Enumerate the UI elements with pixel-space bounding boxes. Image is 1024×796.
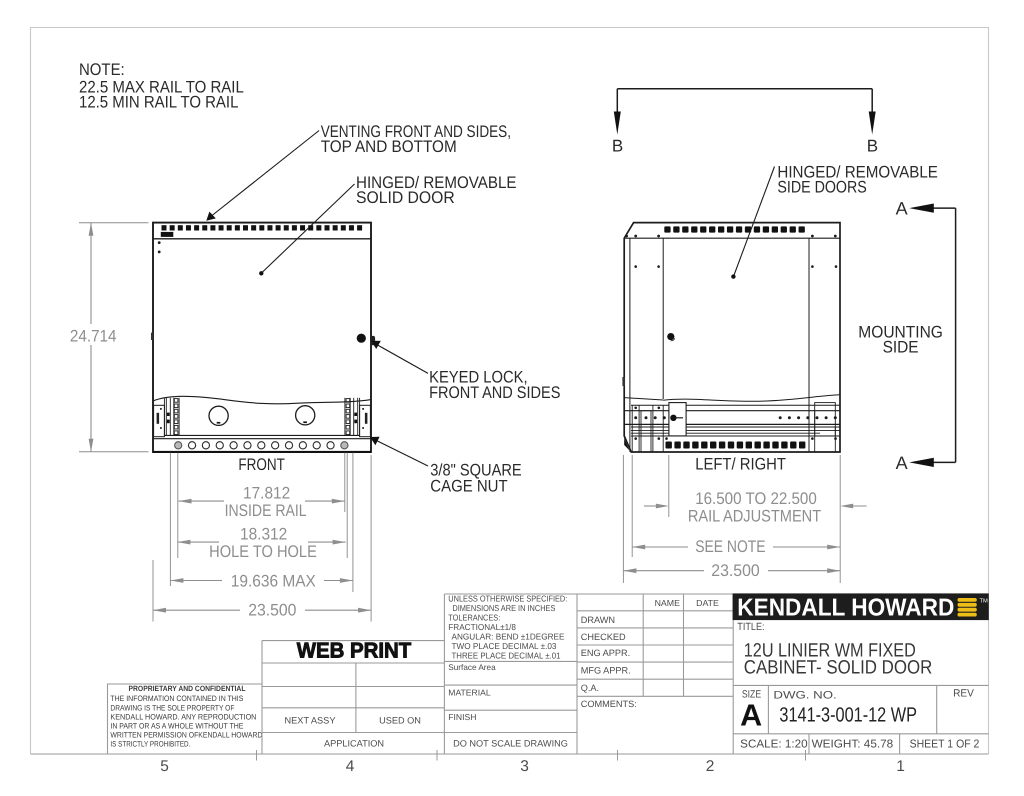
svg-text:A: A bbox=[896, 198, 908, 218]
svg-text:24.714: 24.714 bbox=[70, 326, 117, 345]
svg-text:FRONT: FRONT bbox=[238, 455, 285, 474]
svg-text:TITLE:: TITLE: bbox=[737, 621, 764, 633]
svg-text:TM: TM bbox=[980, 599, 989, 605]
svg-text:5: 5 bbox=[160, 758, 169, 775]
svg-text:LEFT/ RIGHT: LEFT/ RIGHT bbox=[695, 455, 786, 474]
svg-text:DIMENSIONS ARE IN INCHES: DIMENSIONS ARE IN INCHES bbox=[452, 603, 555, 613]
svg-text:FINISH: FINISH bbox=[448, 712, 476, 722]
svg-text:12.5 MIN RAIL TO RAIL: 12.5 MIN RAIL TO RAIL bbox=[79, 93, 238, 112]
svg-text:PROPRIETARY AND CONFIDENTIAL: PROPRIETARY AND CONFIDENTIAL bbox=[129, 684, 246, 693]
svg-text:SOLID DOOR: SOLID DOOR bbox=[356, 188, 455, 207]
svg-text:TWO PLACE DECIMAL ±.03: TWO PLACE DECIMAL ±.03 bbox=[452, 641, 557, 651]
svg-text:USED ON: USED ON bbox=[379, 716, 421, 726]
svg-text:SHEET 1 OF 2: SHEET 1 OF 2 bbox=[910, 739, 980, 751]
svg-text:DRAWN: DRAWN bbox=[581, 615, 615, 625]
svg-text:IN PART OR AS A WHOLE WITHOUT: IN PART OR AS A WHOLE WITHOUT THE bbox=[110, 722, 243, 731]
svg-text:TOLERANCES:: TOLERANCES: bbox=[448, 613, 500, 623]
svg-text:A: A bbox=[740, 699, 762, 733]
svg-text:Q.A.: Q.A. bbox=[581, 683, 599, 693]
svg-text:B: B bbox=[612, 136, 623, 155]
svg-text:COMMENTS:: COMMENTS: bbox=[581, 699, 637, 709]
svg-text:FRONT AND SIDES: FRONT AND SIDES bbox=[429, 383, 560, 402]
svg-text:17.812: 17.812 bbox=[243, 484, 290, 503]
svg-text:HOLE TO HOLE: HOLE TO HOLE bbox=[209, 542, 317, 561]
svg-text:CHECKED: CHECKED bbox=[581, 632, 626, 642]
svg-text:KENDALL HOWARD. ANY REPRODUCT: KENDALL HOWARD. ANY REPRODUCTION bbox=[110, 712, 256, 721]
svg-text:TOP AND BOTTOM: TOP AND BOTTOM bbox=[321, 137, 457, 156]
svg-text:B: B bbox=[867, 136, 878, 155]
svg-text:WEIGHT: 45.78: WEIGHT: 45.78 bbox=[812, 739, 894, 751]
svg-text:CABINET- SOLID DOOR: CABINET- SOLID DOOR bbox=[744, 658, 933, 679]
svg-text:Surface Area: Surface Area bbox=[448, 663, 496, 672]
svg-text:A: A bbox=[896, 453, 908, 473]
svg-text:3: 3 bbox=[520, 758, 529, 775]
svg-text:NOTE:: NOTE: bbox=[79, 60, 125, 79]
svg-text:DO NOT SCALE DRAWING: DO NOT SCALE DRAWING bbox=[453, 738, 568, 748]
svg-text:DWG. NO.: DWG. NO. bbox=[773, 689, 836, 701]
svg-text:CAGE NUT: CAGE NUT bbox=[430, 477, 507, 496]
svg-text:4: 4 bbox=[346, 758, 355, 775]
svg-text:19.636 MAX: 19.636 MAX bbox=[231, 572, 316, 591]
svg-text:MATERIAL: MATERIAL bbox=[448, 687, 491, 697]
svg-text:UNLESS OTHERWISE SPECIFIED:: UNLESS OTHERWISE SPECIFIED: bbox=[448, 594, 567, 604]
svg-text:23.500: 23.500 bbox=[248, 600, 296, 619]
svg-text:SEE NOTE: SEE NOTE bbox=[695, 537, 765, 556]
svg-text:SIDE: SIDE bbox=[883, 338, 919, 357]
svg-text:FRACTIONAL±1/8: FRACTIONAL±1/8 bbox=[448, 622, 516, 632]
svg-text:23.500: 23.500 bbox=[711, 561, 759, 580]
svg-text:18.312: 18.312 bbox=[240, 525, 287, 544]
svg-text:THE INFORMATION CONTAINED IN T: THE INFORMATION CONTAINED IN THIS bbox=[110, 694, 243, 703]
svg-text:ENG APPR.: ENG APPR. bbox=[581, 648, 631, 658]
svg-text:16.500 TO 22.500: 16.500 TO 22.500 bbox=[695, 489, 817, 508]
svg-text:WRITTEN PERMISSION OFKENDALL H: WRITTEN PERMISSION OFKENDALL HOWARD bbox=[110, 731, 262, 740]
svg-text:KENDALL HOWARD: KENDALL HOWARD bbox=[737, 595, 954, 622]
svg-text:SIDE DOORS: SIDE DOORS bbox=[777, 177, 866, 196]
svg-text:WEB PRINT: WEB PRINT bbox=[297, 639, 412, 663]
svg-text:ANGULAR: BEND ±1DEGREE: ANGULAR: BEND ±1DEGREE bbox=[452, 632, 565, 642]
svg-text:IS STRICTLY PROHIBITED.: IS STRICTLY PROHIBITED. bbox=[110, 740, 190, 749]
svg-text:NEXT ASSY: NEXT ASSY bbox=[285, 716, 336, 726]
svg-text:DATE: DATE bbox=[696, 598, 719, 608]
svg-text:SCALE: 1:20: SCALE: 1:20 bbox=[740, 739, 807, 751]
svg-text:3141-3-001-12 WP: 3141-3-001-12 WP bbox=[779, 703, 917, 726]
svg-text:NAME: NAME bbox=[655, 598, 681, 608]
svg-text:INSIDE RAIL: INSIDE RAIL bbox=[225, 501, 307, 520]
svg-text:REV: REV bbox=[953, 687, 974, 699]
svg-text:1: 1 bbox=[896, 758, 905, 775]
svg-text:APPLICATION: APPLICATION bbox=[324, 738, 384, 748]
svg-text:2: 2 bbox=[706, 758, 715, 775]
svg-text:DRAWING IS THE SOLE PROPERTY O: DRAWING IS THE SOLE PROPERTY OF bbox=[110, 703, 234, 712]
svg-text:RAIL ADJUSTMENT: RAIL ADJUSTMENT bbox=[688, 507, 821, 526]
svg-text:MFG APPR.: MFG APPR. bbox=[581, 666, 631, 676]
svg-text:THREE PLACE DECIMAL ±.01: THREE PLACE DECIMAL ±.01 bbox=[452, 651, 561, 661]
